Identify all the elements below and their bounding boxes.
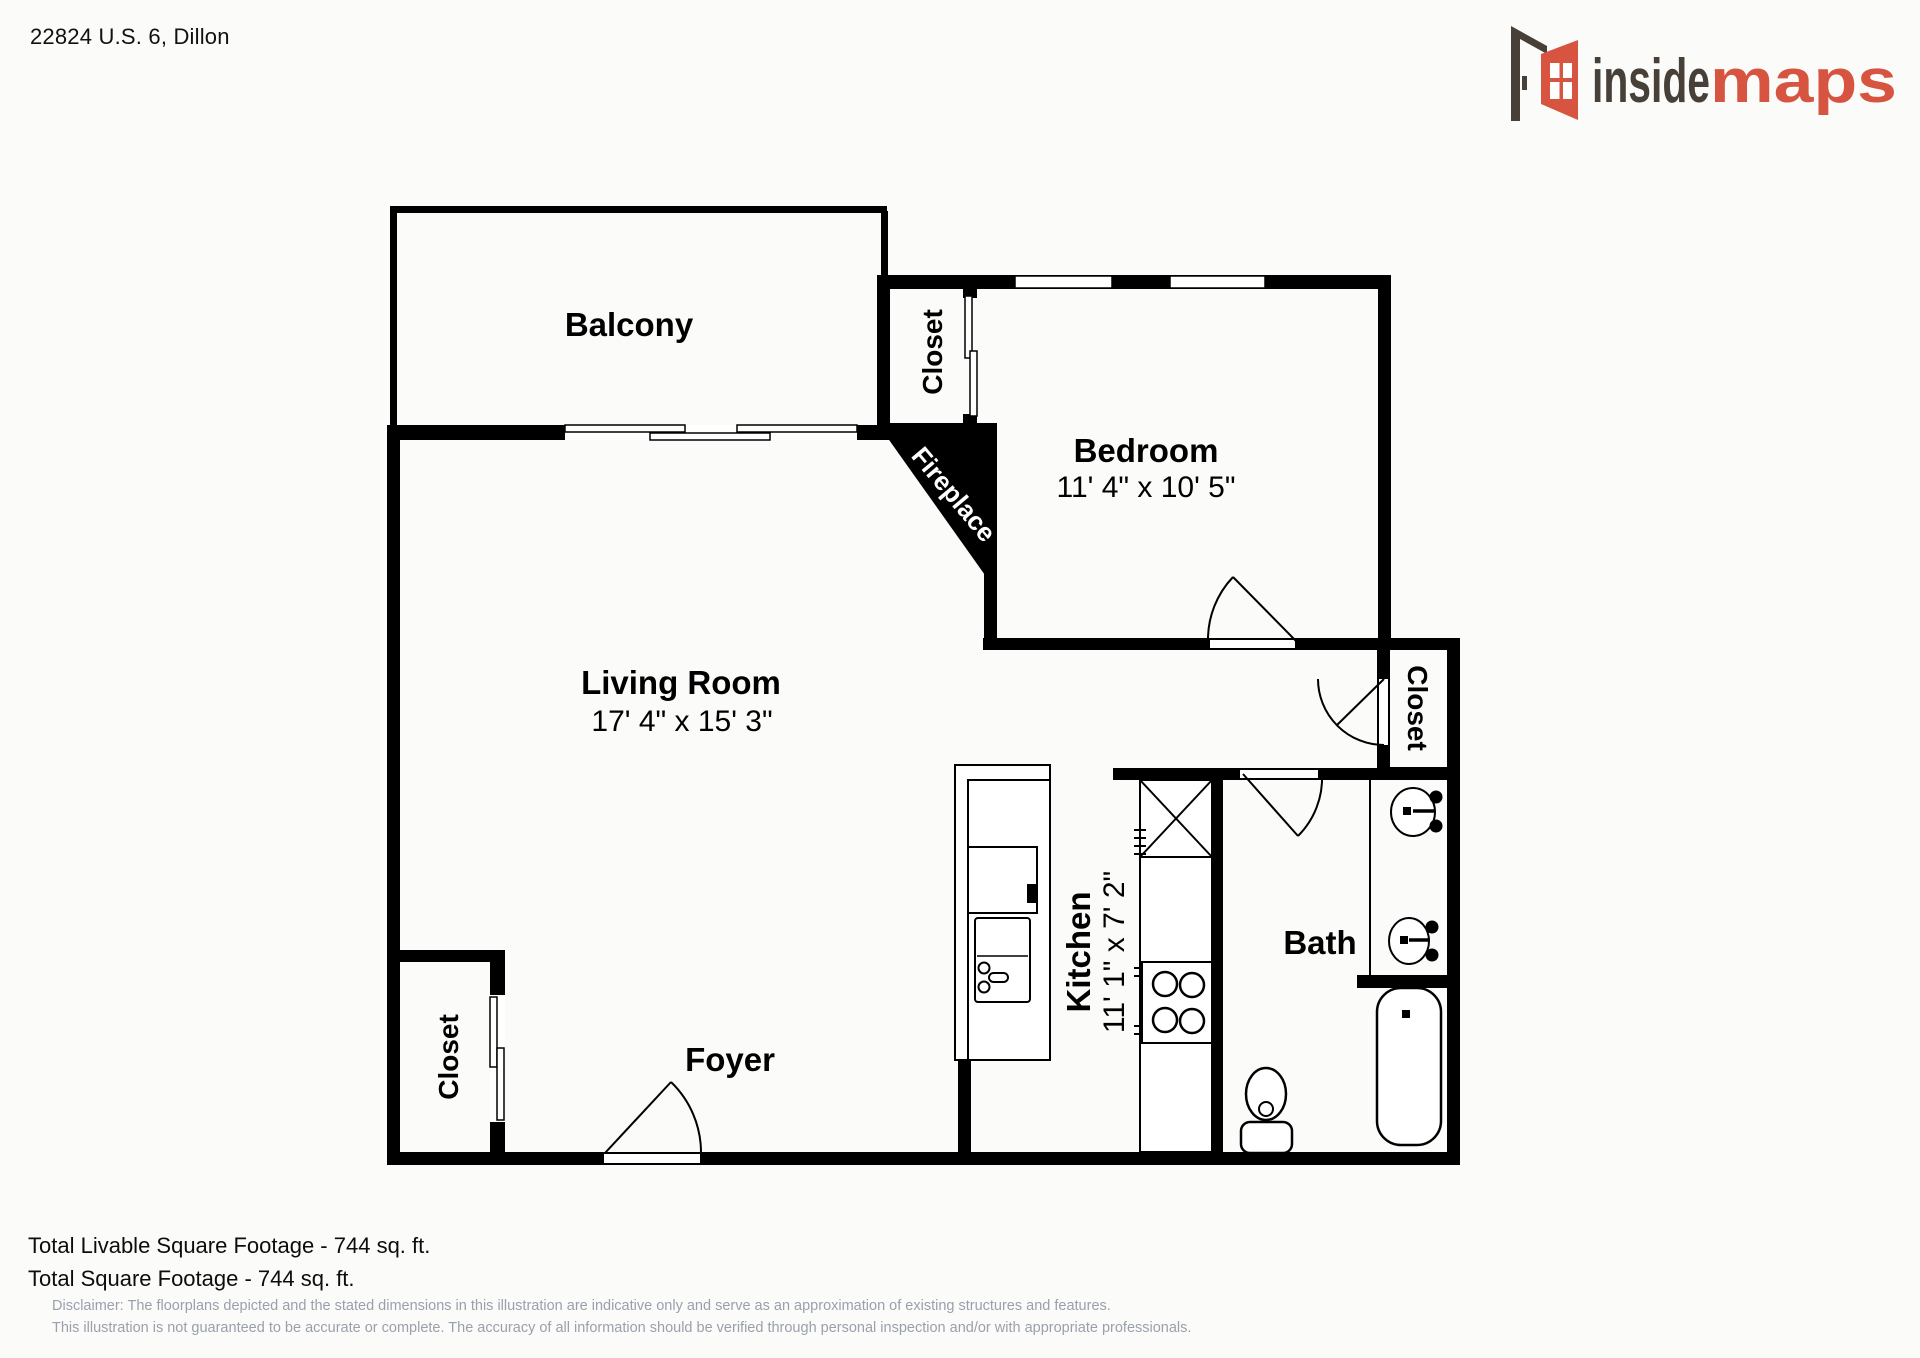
bedroom-bottom-wall-left [983,638,1209,650]
foyer-label: Foyer [685,1041,775,1078]
bedroom-closet-slider-panel [965,296,972,358]
bath-door-swing-line [1243,774,1298,836]
stove-burner-icon [1153,972,1177,996]
front-door-leaf [603,1153,701,1164]
bath-sink-drain [1400,936,1408,944]
balcony-slider-panel [737,425,857,432]
kitchen-bath-wall [1212,780,1223,1152]
toilet-tank-icon [1241,1122,1292,1153]
bedroom-top-wall [877,275,1391,289]
kitchen-faucet-knob-icon [979,982,990,993]
livingroom-top-wall-left [387,425,565,440]
bedroom-door-arc [1208,577,1233,641]
bathtub-drain [1402,1010,1410,1018]
bath-sink-knob-icon [1426,949,1439,962]
bedroom-door-leaf [1209,639,1296,649]
floorplan-page: 22824 U.S. 6, Dillon inside maps [0,0,1920,1358]
balcony-top-wall [390,206,887,213]
kitchen-stub-wall [958,1060,971,1152]
hall-closet-bottom-wall [1377,767,1460,780]
bath-sink-knob-icon [1426,921,1439,934]
front-door-arc [671,1082,701,1153]
balcony-slider-panel [565,425,685,432]
bath-stub-wall [1357,975,1447,988]
total-sqft: Total Square Footage - 744 sq. ft. [28,1266,355,1292]
disclaimer-line-2: This illustration is not guaranteed to b… [52,1320,1191,1336]
balcony-label: Balcony [565,306,694,343]
bath-fixtures [1241,780,1443,1153]
bath-sink-drain [1403,807,1411,815]
bath-sink-knob-icon [1430,791,1443,804]
foyer-closet-label: Closet [433,1014,464,1100]
bedroom-right-wall [1378,275,1391,650]
foyer-closet-slider-panel [497,1048,504,1120]
bath-door-arc [1298,774,1322,836]
kitchen-faucet-knob-icon [979,963,990,974]
hall-closet-door-leaf [1378,678,1389,746]
bedroom-closet-left-wall [877,277,890,437]
bath-door-leaf [1239,769,1319,779]
foyer-closet-slider-panel [490,997,497,1067]
outer-right-wall [1447,638,1460,1165]
kitchen-faucet-spout-icon [989,973,1008,982]
stove-burner-icon [1180,973,1204,997]
kitchen-label: Kitchen [1060,891,1097,1012]
bedroom-window [1015,276,1112,288]
insidemaps-logo: inside maps [1511,26,1897,121]
toilet-flush-icon [1259,1102,1273,1116]
bedroom-dimensions: 11' 4" x 10' 5" [1057,471,1236,504]
front-door-swing-line [605,1082,671,1153]
logo-text-maps: maps [1710,47,1897,116]
outer-left-wall [387,425,400,1165]
bedroom-label: Bedroom [1074,432,1219,469]
bedroom-closet-label: Closet [917,309,948,395]
bedroom-bottom-wall-right [1296,638,1460,650]
logo-text-inside: inside [1592,47,1710,116]
bath-label: Bath [1283,924,1356,961]
living-room-label: Living Room [581,664,781,701]
balcony-slider-panel [650,433,770,440]
bedroom-window [1170,276,1265,288]
bath-sink-knob-icon [1430,820,1443,833]
total-livable-sqft: Total Livable Square Footage - 744 sq. f… [28,1233,430,1259]
kitchen-cabinet [968,847,1037,913]
logo-doorhandle-icon [1522,76,1527,90]
hall-closet-door-swing-line [1337,679,1384,725]
living-room-dimensions: 17' 4" x 15' 3" [591,705,772,738]
disclaimer-line-1: Disclaimer: The floorplans depicted and … [52,1298,1111,1314]
bedroom-closet-slider-panel [970,351,977,416]
balcony-right-wall [881,211,888,279]
kitchen-cabinet-handle [1027,884,1037,903]
hall-closet-label: Closet [1402,665,1433,751]
outer-bottom-wall [387,1152,1460,1165]
bedroom-door-swing-line [1233,577,1296,641]
floorplan-drawing: inside maps [0,0,1920,1358]
balcony-left-wall [390,206,397,425]
foyer-closet-top-wall [387,950,505,962]
stove-burner-icon [1153,1008,1177,1032]
stove-burner-icon [1180,1009,1204,1033]
kitchen-dimensions: 11' 1" x 7' 2" [1098,871,1131,1033]
stove [1142,962,1212,1043]
logo-window-mullion-h [1550,78,1572,82]
